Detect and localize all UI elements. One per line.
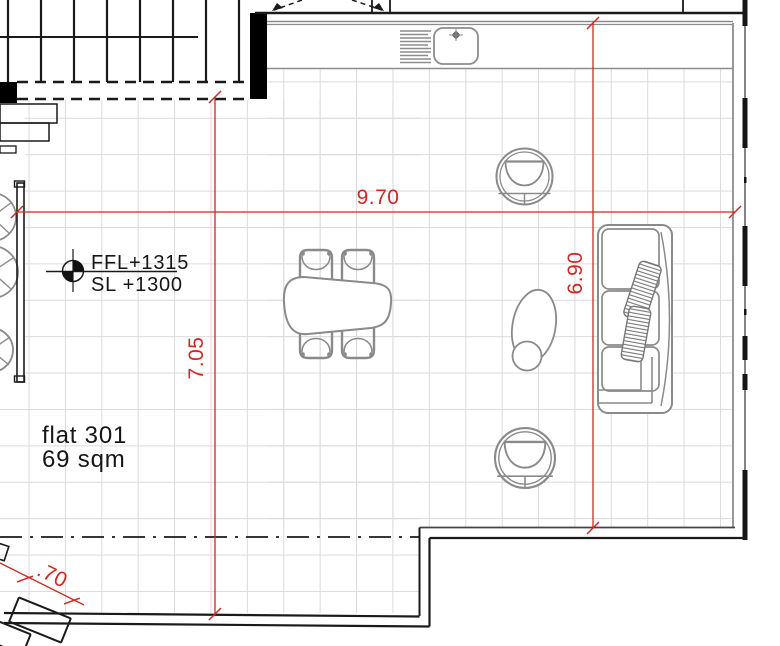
side-table — [513, 342, 542, 371]
dining-table — [284, 277, 391, 334]
dim-label-height-left: 7.05 — [185, 336, 209, 380]
unit-area-label: 69 sqm — [42, 447, 126, 472]
drainer-icon — [400, 31, 431, 63]
plan-linework — [0, 0, 780, 646]
window-wall — [733, 0, 748, 540]
kitchen-sink-icon — [434, 28, 478, 64]
level-label-ffl: FFL+1315 — [91, 252, 189, 275]
armchair-bottom — [495, 428, 555, 488]
left-wall-louvres — [0, 181, 25, 382]
dim-label-width: 9.70 — [356, 186, 400, 210]
boundary-walls — [0, 528, 747, 646]
wall-left — [17, 183, 24, 382]
wall-solid-column — [250, 13, 267, 99]
sofa — [598, 225, 672, 413]
wall-solid-left — [0, 82, 17, 103]
floor-plan-canvas: FFL+1315 SL +1300 flat 301 69 sqm 9.70 7… — [0, 0, 780, 646]
dining-set — [284, 250, 391, 358]
stair-landing-step — [0, 104, 57, 123]
dim-label-height-right: 6.90 — [564, 251, 588, 295]
door-frame — [0, 146, 16, 153]
staircase — [0, 0, 267, 153]
coffee-table — [506, 286, 561, 370]
armchair-top — [497, 149, 553, 205]
stair-above-arrows — [272, 0, 683, 13]
kitchen-counter — [255, 13, 746, 69]
level-label-sl: SL +1300 — [91, 274, 183, 297]
unit-name-label: flat 301 — [42, 423, 127, 448]
dining-chair — [342, 250, 374, 283]
stair-landing-step — [0, 123, 49, 141]
